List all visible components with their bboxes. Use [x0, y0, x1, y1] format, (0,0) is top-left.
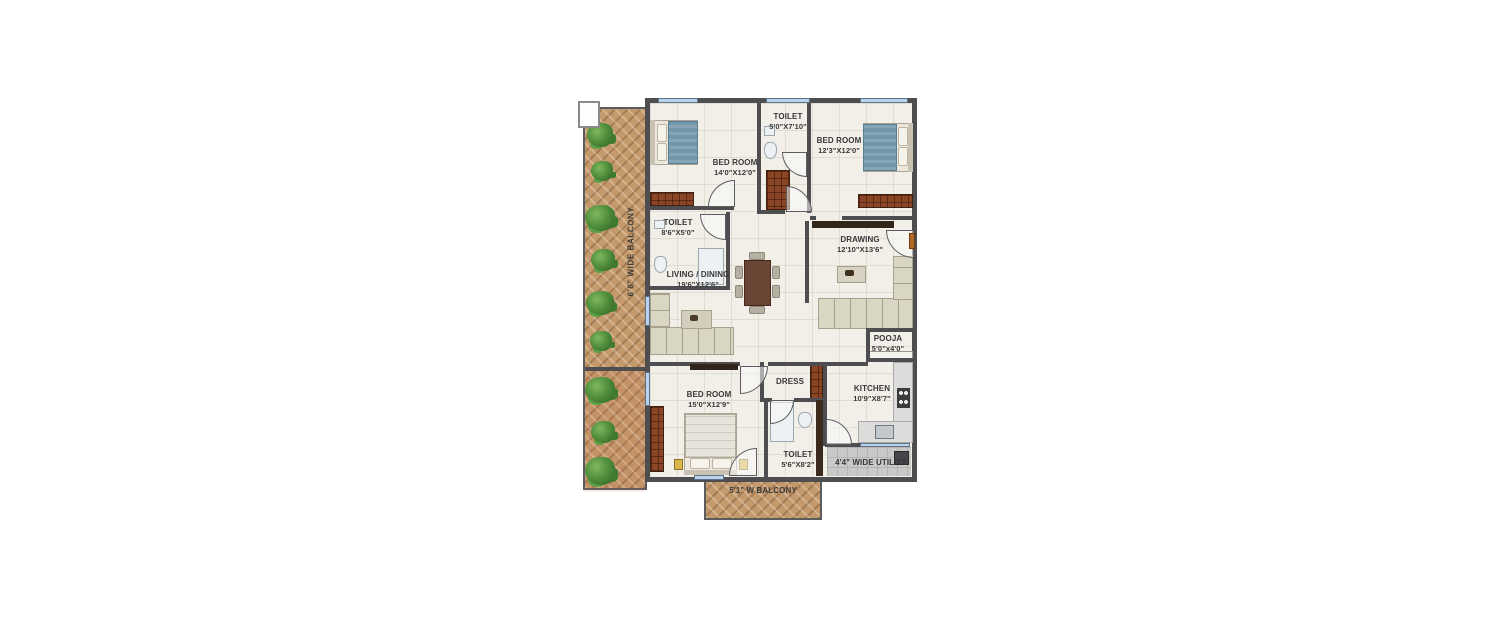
pillow	[657, 124, 667, 142]
bed-headboard	[908, 123, 913, 172]
dining-chair	[772, 285, 780, 298]
wc	[654, 256, 667, 273]
window	[694, 475, 724, 480]
wc	[764, 142, 777, 159]
bed-blanket	[685, 414, 736, 458]
wall	[810, 216, 816, 220]
room-label-bedroom3: BED ROOM 15'0"X12'9"	[687, 390, 732, 409]
table-item	[845, 270, 854, 276]
left-balcony-label: 6'6" WIDE BALCONY	[627, 182, 636, 322]
room-name: TOILET	[769, 112, 807, 122]
floor-plan-canvas: 6'6" WIDE BALCONY 5'1" W BALCONY	[0, 0, 1500, 625]
room-dims: 15'0"X12'9"	[687, 400, 732, 409]
bed-blanket	[668, 121, 698, 164]
dining-chair	[735, 285, 743, 298]
wall	[842, 216, 915, 220]
room-name: TOILET	[661, 218, 694, 228]
room-label-kitchen: KITCHEN 10'9"X8'7"	[853, 384, 891, 403]
bottom-balcony: 5'1" W BALCONY	[704, 478, 822, 520]
window	[860, 443, 910, 447]
wardrobe	[858, 194, 913, 208]
duct-wall	[816, 400, 823, 476]
room-name: DRAWING	[837, 235, 883, 245]
room-name: LIVING / DINING	[667, 270, 730, 280]
room-dims: 19'6"X12'6"	[667, 280, 730, 289]
window	[860, 98, 908, 103]
tv-console	[812, 221, 894, 228]
room-dims: 10'9"X8'7"	[853, 394, 891, 403]
wc	[798, 412, 812, 428]
room-label-toilet-top: TOILET 5'0"X7'10"	[769, 112, 807, 131]
room-name: KITCHEN	[853, 384, 891, 394]
wall	[757, 210, 785, 214]
dining-chair	[749, 252, 765, 260]
room-dims: 5'6"X8'2"	[781, 460, 814, 469]
wall	[757, 103, 761, 213]
window	[645, 296, 650, 326]
pillow	[898, 147, 908, 166]
wall	[768, 362, 868, 366]
dining-table	[744, 260, 771, 306]
sink	[875, 425, 894, 439]
wall	[807, 103, 811, 213]
wall	[764, 402, 768, 478]
dining-chair	[749, 306, 765, 314]
wall	[805, 221, 809, 303]
room-label-drawing: DRAWING 12'10"X13'6"	[837, 235, 883, 254]
wardrobe	[650, 406, 664, 472]
main-entrance-door-leaf	[909, 233, 915, 249]
room-label-toilet-bottom: TOILET 5'6"X8'2"	[781, 450, 814, 469]
room-name: DRESS	[776, 377, 804, 387]
dress-wardrobe	[810, 364, 823, 400]
balcony-divider-wall	[585, 367, 645, 371]
room-dims: 5'0"X7'10"	[769, 122, 807, 131]
wall	[866, 358, 915, 362]
room-dims: 14'0"X12'0"	[713, 168, 758, 177]
room-name: POOJA	[872, 334, 904, 344]
room-name: 4'4" WIDE UTILITY	[835, 458, 907, 468]
pillow	[690, 458, 710, 469]
left-balcony: 6'6" WIDE BALCONY	[583, 107, 647, 490]
room-label-bedroom2: BED ROOM 12'3"X12'0"	[817, 136, 862, 155]
sofa	[650, 293, 670, 327]
window	[658, 98, 698, 103]
nightstand	[674, 459, 683, 470]
bed-blanket	[863, 124, 897, 171]
room-label-living: LIVING / DINING 19'6"X12'6"	[667, 270, 730, 289]
room-dims: 8'6"X5'0"	[661, 228, 694, 237]
plant-icon	[585, 377, 615, 403]
bed-headboard	[650, 120, 655, 165]
room-dims: 12'3"X12'0"	[817, 146, 862, 155]
plant-icon	[591, 161, 613, 181]
sofa	[893, 256, 913, 300]
rug-item	[690, 315, 698, 321]
room-label-toilet-mid: TOILET 8'6"X5'0"	[661, 218, 694, 237]
pillow	[657, 143, 667, 161]
room-label-pooja: POOJA 5'0"x4'0"	[872, 334, 904, 353]
room-label-utility: 4'4" WIDE UTILITY	[835, 458, 907, 468]
room-name: BED ROOM	[713, 158, 758, 168]
ac-ledge	[578, 101, 600, 128]
room-name: BED ROOM	[817, 136, 862, 146]
dining-chair	[735, 266, 743, 279]
room-label-bedroom1: BED ROOM 14'0"X12'0"	[713, 158, 758, 177]
room-name: TOILET	[781, 450, 814, 460]
room-label-dress: DRESS	[776, 377, 804, 387]
room-dims: 5'0"x4'0"	[872, 344, 904, 353]
room-dims: 12'10"X13'6"	[837, 245, 883, 254]
wall	[866, 328, 870, 362]
bottom-balcony-label: 5'1" W BALCONY	[729, 486, 797, 496]
room-name: BED ROOM	[687, 390, 732, 400]
wardrobe	[650, 192, 694, 206]
pillow	[898, 127, 908, 146]
window	[645, 372, 650, 406]
wall	[866, 328, 915, 332]
hob	[897, 388, 910, 408]
plant-icon	[591, 249, 615, 271]
dining-chair	[772, 266, 780, 279]
tv-unit	[690, 364, 738, 370]
pillow	[712, 458, 732, 469]
window	[766, 98, 810, 103]
sofa	[818, 298, 913, 329]
sofa	[650, 327, 734, 355]
plant-icon	[585, 205, 615, 231]
plant-icon	[591, 421, 615, 443]
plant-icon	[585, 457, 615, 485]
plant-icon	[590, 331, 612, 351]
plant-icon	[586, 291, 614, 315]
